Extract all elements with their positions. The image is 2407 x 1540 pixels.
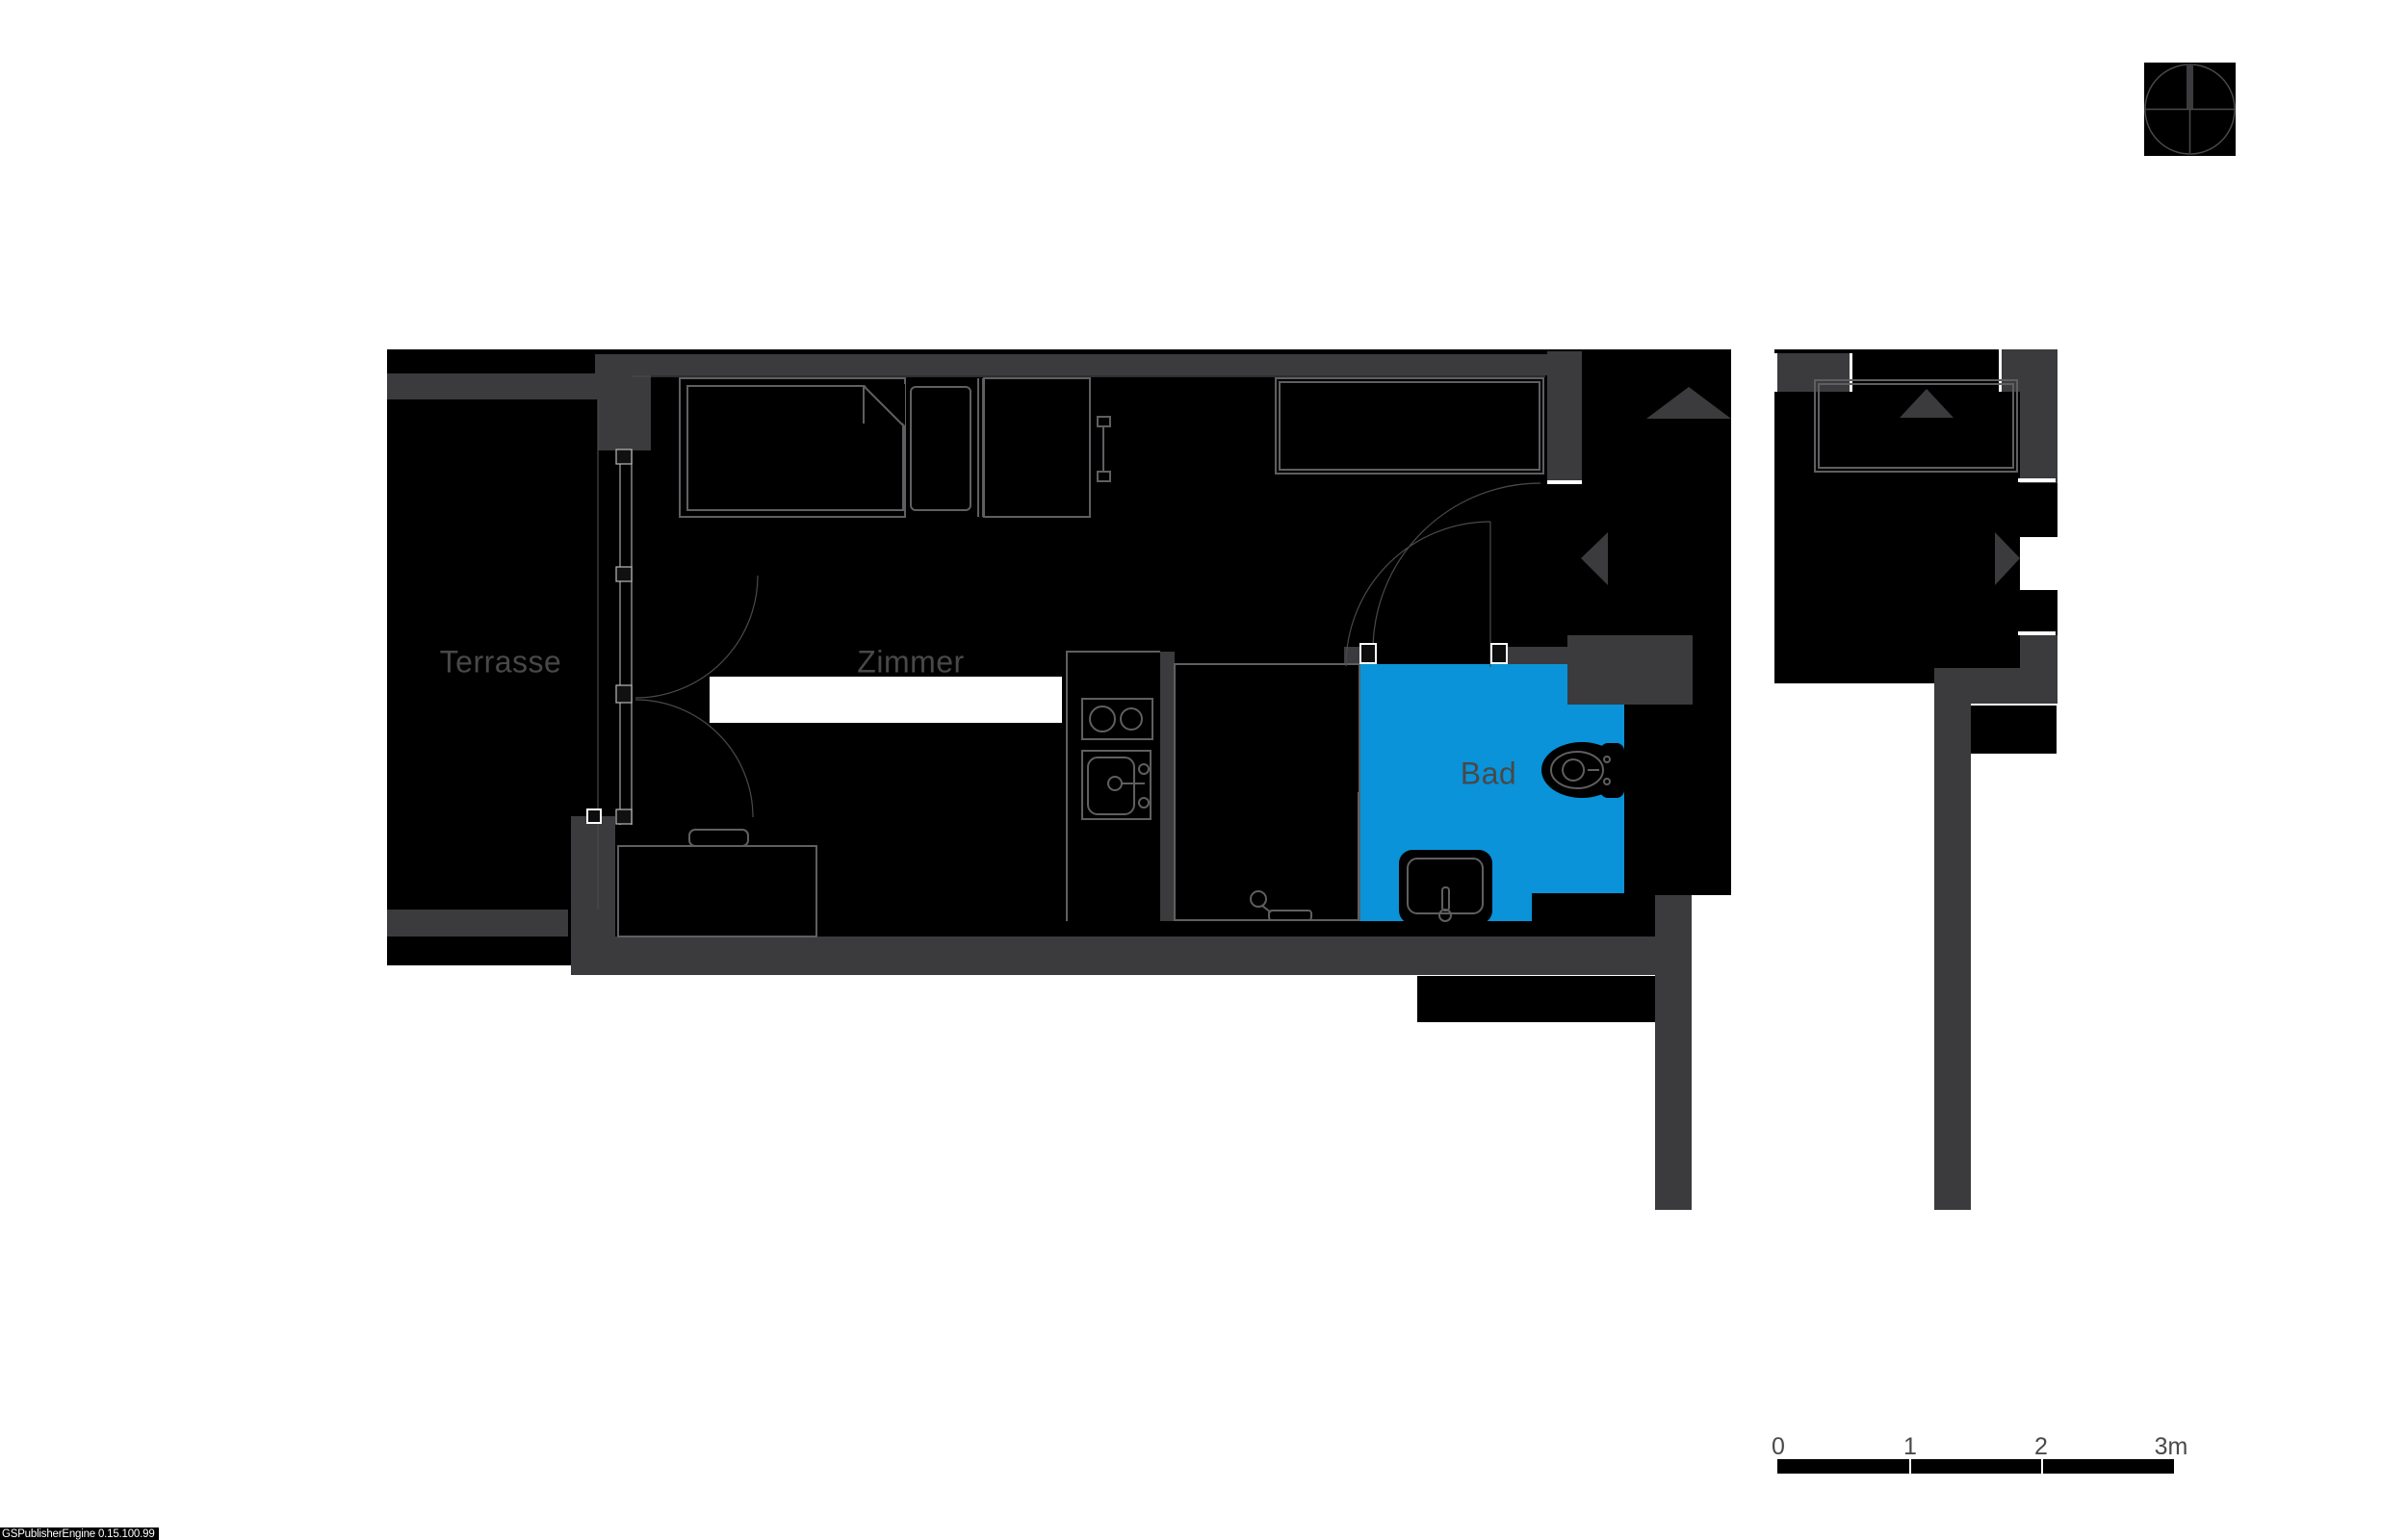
room-label-bad: Bad	[1461, 757, 1516, 792]
watermark: GSPublisherEngine 0.15.100.99	[0, 1527, 159, 1540]
toilet	[1541, 742, 1624, 798]
washbasin	[1399, 850, 1492, 924]
scale-tick-2: 2	[2034, 1433, 2048, 1461]
neighbour-entry-opening	[2020, 537, 2058, 590]
scale-tick-1: 1	[1903, 1433, 1917, 1461]
desk	[618, 846, 816, 937]
floor-plan-canvas: Terrasse Zimmer Bad 0 1 2 3m GSPublisher…	[0, 0, 2407, 1540]
north-indicator-icon	[2144, 63, 2236, 156]
room-label-zimmer: Zimmer	[857, 645, 964, 680]
room-label-terrasse: Terrasse	[440, 645, 562, 680]
floor-plan-drawing	[0, 0, 2407, 1540]
scale-bar	[1777, 1459, 2174, 1474]
dining-table	[710, 677, 1062, 723]
scale-tick-3m: 3m	[2155, 1433, 2188, 1461]
scale-tick-0: 0	[1772, 1433, 1785, 1461]
